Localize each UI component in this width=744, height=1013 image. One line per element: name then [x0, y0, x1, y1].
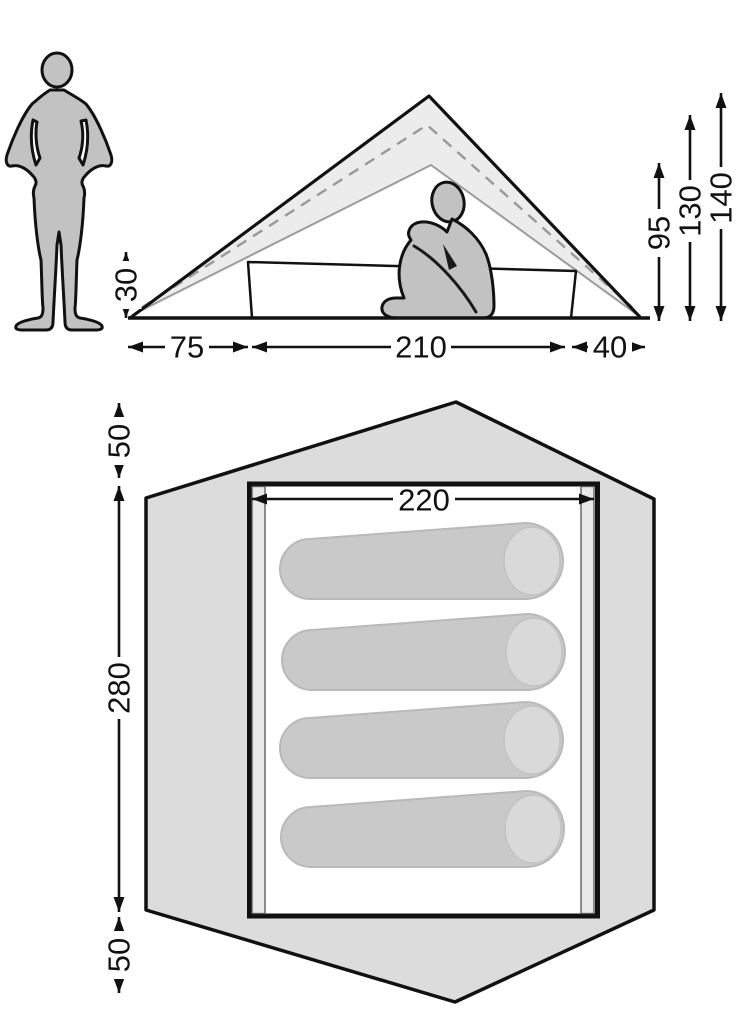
dim-label-group: 95: [642, 209, 677, 257]
dim-label-group: 50: [102, 417, 137, 465]
tent-dimensions-diagram: 30 75 210 40: [0, 0, 744, 1013]
arrowhead-up: [114, 917, 125, 932]
seated-person-silhouette: [382, 179, 494, 318]
dim-inner-width-label: 220: [398, 483, 450, 518]
side-view: 30 75 210 40: [6, 53, 738, 365]
arrowhead-up: [716, 93, 727, 108]
floor-plan: 220 50 280: [102, 402, 655, 1002]
standing-person-silhouette: [6, 53, 112, 330]
arrowhead-right: [630, 342, 645, 353]
tent-side-profile: [130, 96, 640, 318]
dim-top-canopy-label: 50: [102, 424, 137, 458]
dim-edge-height: 30: [109, 252, 144, 318]
dim-inner-height-label: 95: [642, 216, 677, 250]
dim-inner-length-side: 210: [252, 330, 565, 365]
arrowhead-up: [685, 115, 696, 130]
sleeping-bag-hood: [506, 618, 562, 686]
seated-person-body: [382, 219, 494, 318]
dim-mid-height-label: 130: [673, 185, 708, 237]
dim-porch-depth: 75: [128, 330, 248, 365]
arrowhead-right: [550, 342, 565, 353]
dim-plan-length-label: 280: [102, 662, 137, 714]
dim-label-group: 280: [102, 657, 137, 719]
dim-peak-height: 140: [704, 93, 739, 321]
arrowhead-up: [114, 486, 125, 501]
arrowhead-down: [716, 306, 727, 321]
arrowhead-right: [233, 342, 248, 353]
arrowhead-left: [572, 342, 587, 353]
dim-rear-depth: 40: [572, 330, 645, 365]
dim-top-canopy: 50: [102, 403, 137, 478]
arrowhead-down: [114, 978, 125, 993]
tent-dimensions-page: 30 75 210 40: [0, 0, 744, 1013]
dim-rear-depth-label: 40: [593, 330, 627, 365]
dim-peak-height-label: 140: [704, 172, 739, 224]
standing-person-head: [42, 53, 72, 87]
dim-bottom-canopy-label: 50: [102, 938, 137, 972]
dim-porch-depth-label: 75: [170, 330, 204, 365]
arrowhead-up: [654, 163, 665, 178]
dim-inner-length-label: 210: [395, 330, 447, 365]
right-door-panel: [581, 487, 594, 914]
dim-bottom-canopy: 50: [102, 917, 137, 993]
dim-edge-height-label: 30: [109, 268, 144, 302]
sleeping-bag-hood: [504, 527, 560, 595]
arrowhead-down: [685, 306, 696, 321]
dim-mid-height: 130: [673, 115, 708, 321]
dim-label-group: 140: [704, 167, 739, 229]
dim-label-group: 30: [109, 261, 144, 309]
left-door-panel: [252, 487, 265, 914]
arrowhead-down: [114, 897, 125, 912]
standing-person-body: [6, 90, 112, 330]
dim-label-group: 130: [673, 180, 708, 242]
sleeping-bag-hood: [504, 706, 560, 774]
arrowhead-left: [252, 342, 267, 353]
dim-label-group: 50: [102, 931, 137, 979]
dim-inner-height: 95: [642, 163, 677, 321]
arrowhead-down: [654, 306, 665, 321]
arrowhead-up: [114, 403, 125, 418]
arrowhead-down: [114, 463, 125, 478]
dim-inner-length-plan: 280: [102, 486, 137, 912]
sleeping-bag-hood: [505, 795, 561, 863]
arrowhead-left: [128, 342, 143, 353]
